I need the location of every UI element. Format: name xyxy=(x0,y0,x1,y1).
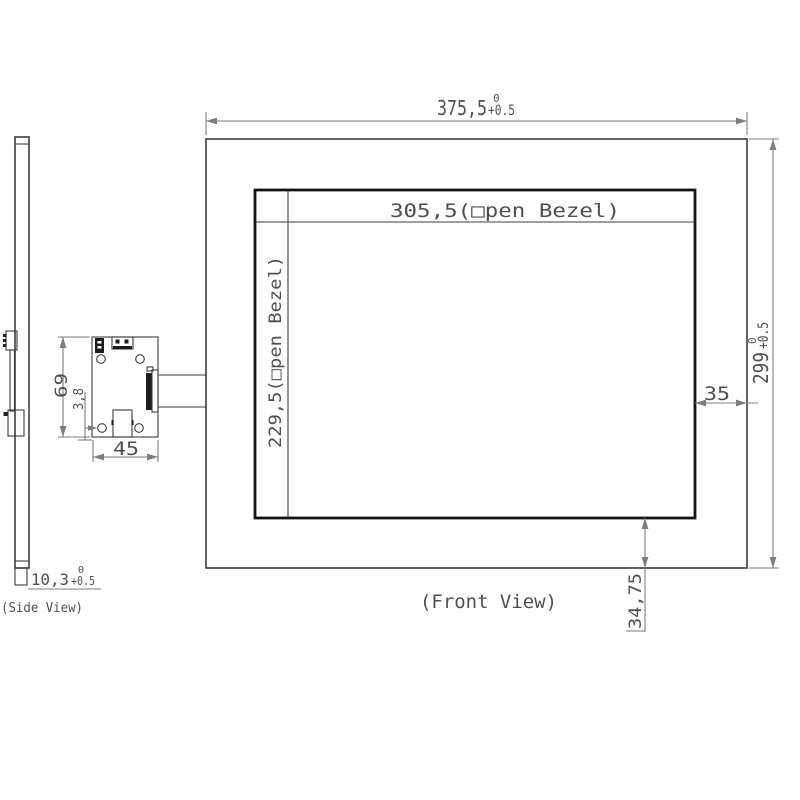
pcb-connector-left xyxy=(95,338,104,353)
dim-width-value: 375,5 xyxy=(437,96,487,120)
connector-pin xyxy=(3,344,7,347)
arrowhead xyxy=(642,557,649,568)
arrowhead xyxy=(60,426,67,437)
connector-key xyxy=(116,340,120,344)
pcb-board-detail xyxy=(92,337,206,437)
dimension-open-bezel-width: 305,5(□pen Bezel) xyxy=(390,200,620,222)
side-view-pcb-strip xyxy=(10,350,15,411)
side-view-label: (Side View) xyxy=(1,601,83,616)
connector-pin xyxy=(4,412,8,416)
side-view-bottom-tab xyxy=(15,568,27,585)
connector-slot xyxy=(98,346,102,349)
panel-dimension-drawing: 375,5 0 +0.5 299 0 +0.5 305,5(□pen Bezel… xyxy=(0,0,800,800)
arrowhead xyxy=(60,337,67,348)
connector-pin-row xyxy=(113,346,132,349)
dimension-thickness: 10,3 0 +0.5 xyxy=(28,565,101,589)
open-bezel-height-label: 229,5(□pen Bezel) xyxy=(266,256,286,448)
open-bezel-width-label: 305,5(□pen Bezel) xyxy=(390,200,620,222)
arrowhead xyxy=(736,400,747,407)
connector-pin xyxy=(3,339,7,342)
connector-key xyxy=(125,340,129,344)
mounting-hole xyxy=(136,355,145,364)
side-view xyxy=(3,137,29,585)
open-bezel-outline xyxy=(255,190,695,518)
technical-drawing-page: 375,5 0 +0.5 299 0 +0.5 305,5(□pen Bezel… xyxy=(0,0,800,800)
dimension-board-height: 69 xyxy=(52,337,90,437)
mounting-hole xyxy=(135,424,144,433)
pcb-bottom-component xyxy=(113,410,132,437)
arrowhead xyxy=(93,454,104,461)
front-view-label: (Front View) xyxy=(420,591,557,613)
connector-slot xyxy=(98,341,102,344)
arrowhead xyxy=(147,454,158,461)
dim-height-tol-lower: +0.5 xyxy=(756,322,772,349)
bezel-bottom-value: 34,75 xyxy=(626,573,646,629)
hole-offset-value: 3,8 xyxy=(72,388,87,410)
board-width-value: 45 xyxy=(113,438,139,460)
arrowhead xyxy=(206,118,217,125)
pcb-connector-right-housing xyxy=(152,370,158,412)
arrowhead xyxy=(642,518,649,529)
dimension-overall-height: 299 0 +0.5 xyxy=(746,139,779,568)
side-view-bottom-box xyxy=(8,410,24,436)
dim-height-value: 299 xyxy=(749,352,773,384)
connector-pin xyxy=(3,334,7,337)
pcb-connector-right xyxy=(146,373,152,410)
side-view-panel-body xyxy=(15,137,29,568)
arrowhead xyxy=(736,118,747,125)
dimension-bezel-right: 35 xyxy=(695,383,758,406)
board-height-value: 69 xyxy=(52,373,72,398)
dim-width-tol-lower: +0.5 xyxy=(488,103,515,119)
thickness-tol-lower: +0.5 xyxy=(71,574,95,588)
dimension-hole-offset: 3,8 xyxy=(72,388,97,440)
mounting-hole xyxy=(97,355,106,364)
dimension-overall-width: 375,5 0 +0.5 xyxy=(206,92,747,135)
dimension-bezel-bottom: 34,75 xyxy=(626,518,648,632)
mounting-hole xyxy=(98,424,107,433)
thickness-value: 10,3 xyxy=(31,570,69,589)
dimension-board-width: 45 xyxy=(93,438,158,462)
component-pin xyxy=(132,420,134,425)
dimension-open-bezel-height: 229,5(□pen Bezel) xyxy=(266,256,286,448)
arrowhead xyxy=(770,557,777,568)
component-pin xyxy=(112,420,114,425)
bezel-right-value: 35 xyxy=(704,383,730,405)
arrowhead xyxy=(770,139,777,150)
